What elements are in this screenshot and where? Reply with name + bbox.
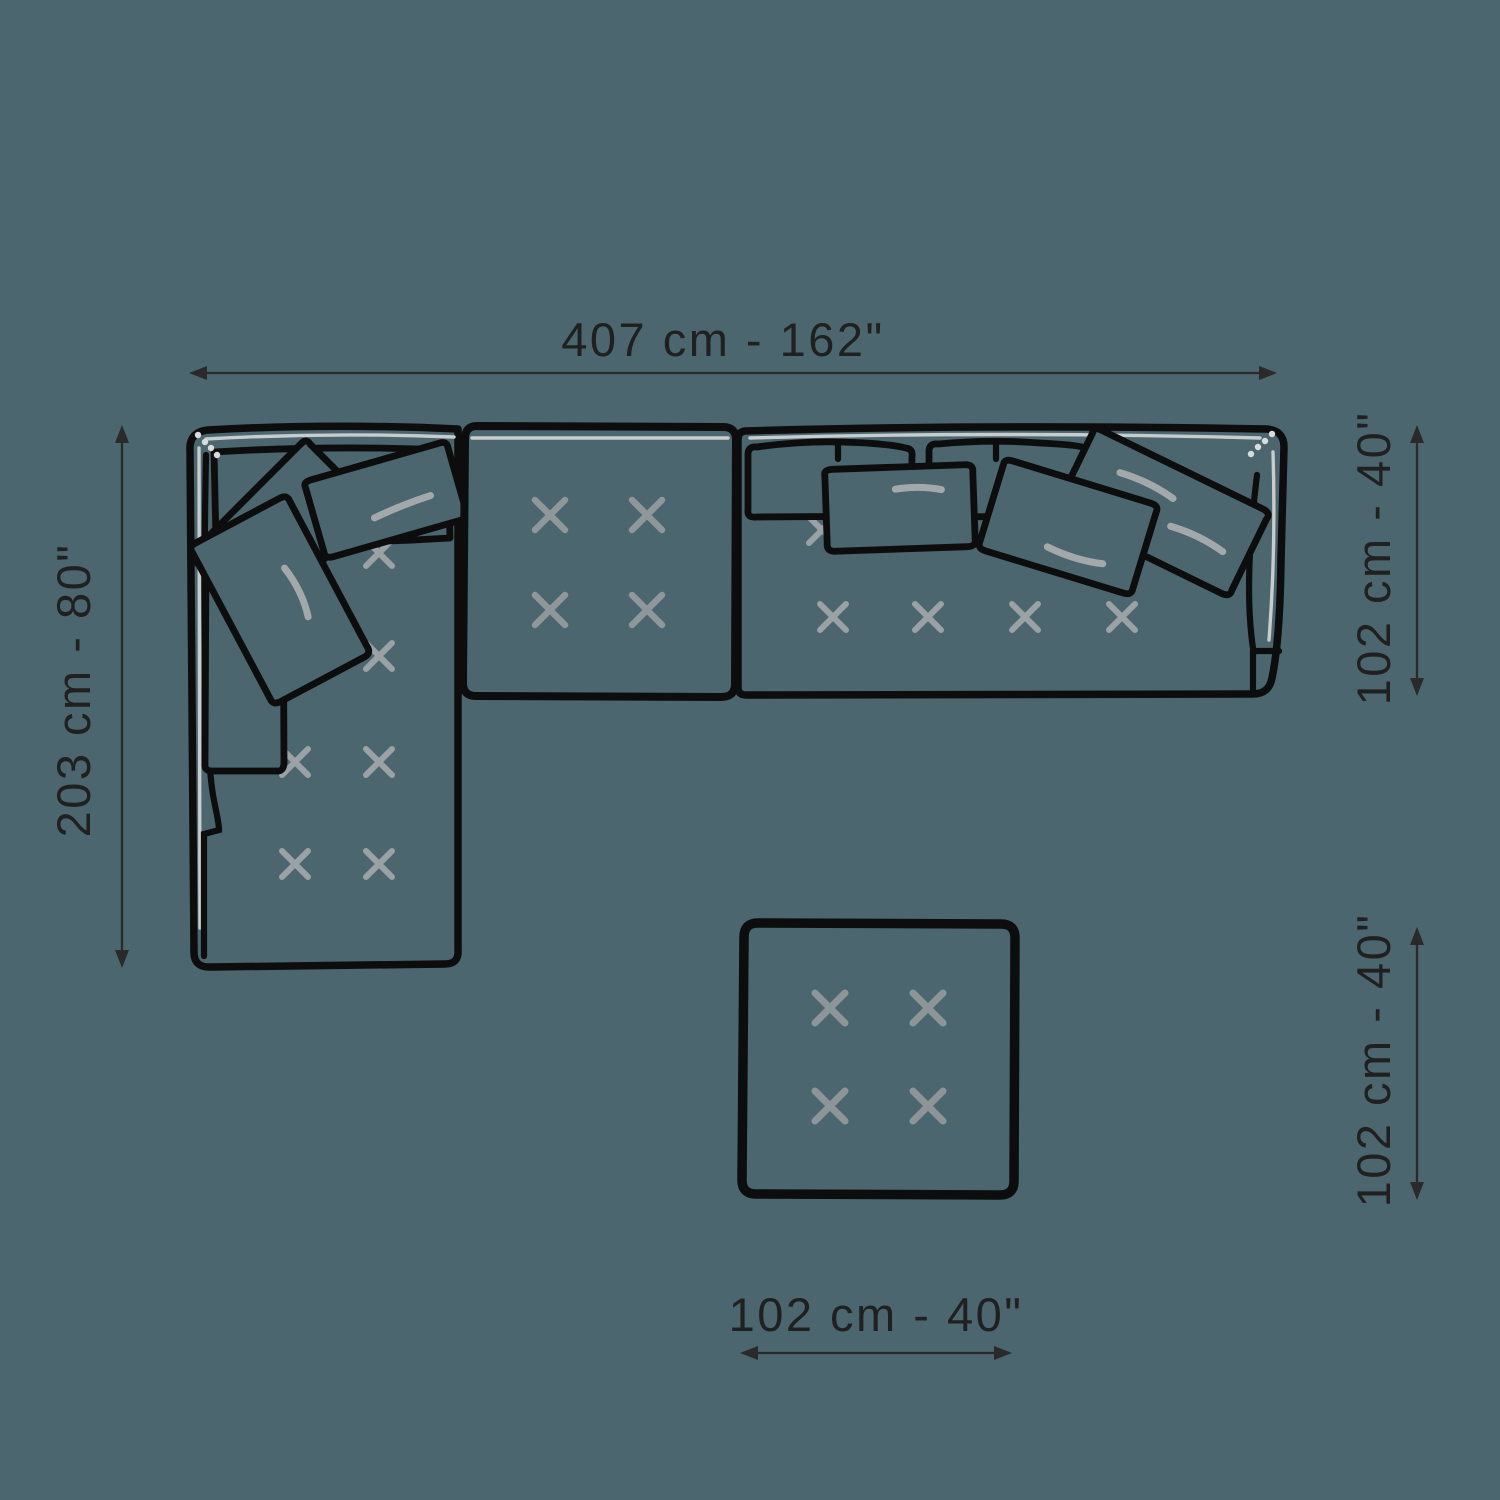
- right-seat-module: [738, 427, 1284, 695]
- dimension-ottoman-depth: 102 cm - 40": [1347, 913, 1424, 1208]
- right-throw-pillow-straight: [825, 464, 976, 551]
- dimension-label-total-width: 407 cm - 162": [561, 313, 885, 366]
- dimension-label-right-section-depth: 102 cm - 40": [1347, 411, 1400, 706]
- chaise-module: [189, 426, 468, 967]
- dimension-label-ottoman-width: 102 cm - 40": [729, 1288, 1024, 1341]
- arrowhead-right-icon: [994, 1346, 1012, 1360]
- dimension-ottoman-width: 102 cm - 40": [729, 1288, 1024, 1360]
- diagram-canvas: 407 cm - 162" 203 cm - 80" 102 cm - 40" …: [0, 0, 1500, 1500]
- dimension-label-ottoman-depth: 102 cm - 40": [1347, 913, 1400, 1208]
- arrowhead-down-icon: [115, 950, 129, 968]
- center-seat-module: [463, 426, 736, 697]
- arrowhead-right-icon: [1259, 366, 1277, 380]
- dimension-label-total-depth: 203 cm - 80": [47, 543, 100, 838]
- arrowhead-down-icon: [1410, 1182, 1424, 1200]
- dimension-right-section-depth: 102 cm - 40": [1347, 411, 1424, 706]
- arrowhead-down-icon: [1410, 678, 1424, 696]
- dimension-total-width: 407 cm - 162": [189, 313, 1277, 380]
- arrowhead-up-icon: [1410, 425, 1424, 443]
- sofa-dimension-diagram: 407 cm - 162" 203 cm - 80" 102 cm - 40" …: [0, 0, 1500, 1500]
- arrowhead-left-icon: [740, 1346, 758, 1360]
- dimension-total-depth: 203 cm - 80": [47, 425, 129, 968]
- arrowhead-up-icon: [1410, 927, 1424, 945]
- arrowhead-left-icon: [189, 366, 207, 380]
- ottoman: [742, 923, 1015, 1195]
- arrowhead-up-icon: [115, 425, 129, 443]
